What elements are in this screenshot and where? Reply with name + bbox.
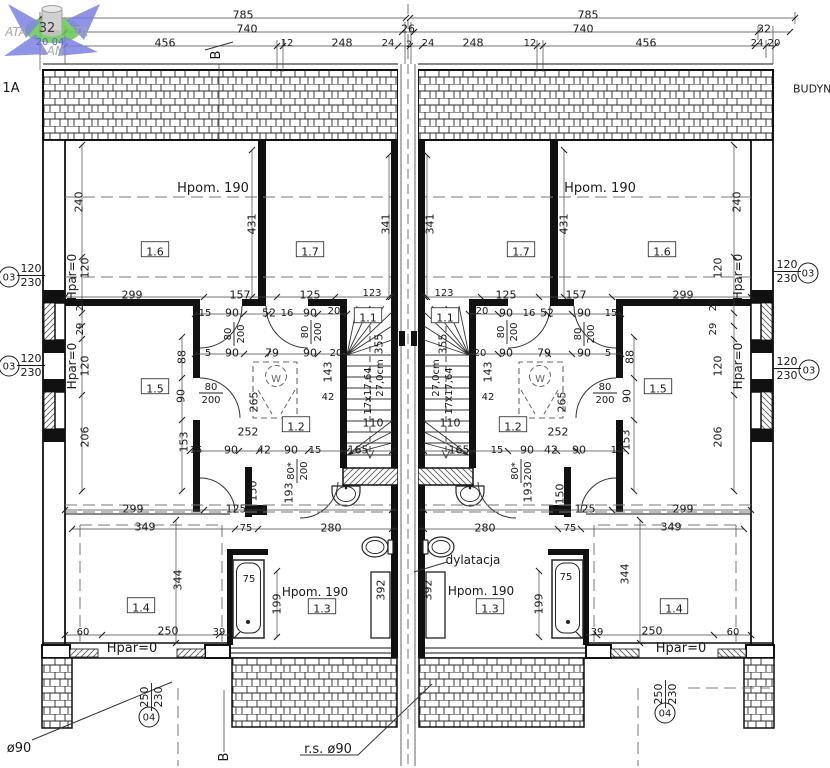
svg-text:20 04: 20 04	[36, 37, 65, 48]
svg-text:27,0cm: 27,0cm	[431, 359, 442, 397]
svg-text:90: 90	[577, 347, 591, 360]
dim-label: 740	[237, 23, 258, 36]
room-number: 1.5	[644, 379, 671, 396]
room-number: 1.5	[141, 379, 168, 396]
dim-label: 90	[225, 307, 239, 320]
svg-text:29: 29	[708, 323, 719, 336]
svg-text:248: 248	[463, 37, 484, 50]
dim-label: 120	[712, 258, 725, 279]
dim-label: 165	[449, 444, 470, 457]
dim-label: 199	[533, 594, 546, 615]
svg-text:299: 299	[122, 289, 143, 302]
dim-label: 265	[556, 392, 569, 413]
dim-label: 24	[751, 38, 764, 49]
wall-height-label: Hpar=0	[65, 254, 79, 301]
dim-label: 193	[283, 483, 296, 504]
dim-label: 431	[558, 214, 571, 235]
room-number: 1.2	[282, 417, 309, 434]
svg-text:42: 42	[482, 392, 495, 403]
svg-text:120: 120	[712, 356, 725, 377]
dim-label: 42	[482, 392, 495, 403]
svg-text:ATA: ATA	[4, 25, 27, 39]
stair-riser-label: 17x17,64	[444, 367, 455, 414]
svg-text:15: 15	[199, 308, 212, 319]
dim-label: 52	[262, 307, 276, 320]
dim-label: 60	[727, 627, 740, 638]
dilatation-joint	[398, 4, 418, 768]
svg-text:355: 355	[373, 334, 386, 355]
wall-height-label: Hpar=0	[107, 641, 158, 656]
window-marker: 04250230	[652, 680, 679, 723]
svg-text:341: 341	[424, 214, 437, 235]
dim-label: 125	[496, 289, 517, 302]
dim-label: 349	[135, 521, 156, 534]
svg-text:42: 42	[257, 444, 271, 457]
svg-text:80: 80	[223, 328, 234, 341]
dim-label: 120	[79, 258, 92, 279]
svg-text:15: 15	[309, 445, 322, 456]
washer-symbol: W	[271, 374, 281, 385]
wall-height-label: Hpar=0	[731, 343, 745, 390]
svg-text:80: 80	[300, 326, 311, 339]
dim-label: 355	[373, 334, 386, 355]
dim-label: 90	[224, 444, 238, 457]
svg-text:1.4: 1.4	[132, 602, 150, 615]
dim-label: 248	[332, 37, 353, 50]
dim-label: 15	[491, 445, 504, 456]
dim-label: 5	[605, 348, 611, 359]
svg-text:90: 90	[520, 444, 534, 457]
window-marker: 03120230	[0, 352, 45, 379]
dim-label: 20	[330, 348, 343, 359]
svg-text:250: 250	[642, 625, 663, 638]
svg-text:60: 60	[727, 627, 740, 638]
svg-text:79: 79	[265, 347, 279, 360]
dim-label: 15	[199, 308, 212, 319]
svg-text:TA: TA	[74, 25, 88, 39]
dim-label: 29	[708, 323, 719, 336]
dim-label: 24	[422, 38, 435, 49]
door-size-label: 80200	[223, 322, 247, 346]
dim-label: 88	[176, 350, 189, 364]
svg-text:125: 125	[575, 503, 596, 516]
svg-text:230: 230	[666, 684, 679, 705]
svg-text:431: 431	[246, 214, 259, 235]
floor-plan-drawing: 7857857402674032456122482422424812456242…	[0, 0, 830, 768]
wall-height-label: Hpar=0	[731, 254, 745, 301]
watermark-text: 32	[39, 21, 56, 36]
svg-text:17x17,64: 17x17,64	[444, 367, 455, 414]
dim-label: 456	[636, 37, 657, 50]
svg-text:1A: 1A	[2, 81, 19, 96]
rainwater-pipe-label: r.s. ø90	[304, 742, 352, 757]
room-height-label: Hpom. 190	[448, 584, 514, 598]
svg-text:90: 90	[303, 347, 317, 360]
svg-text:16: 16	[281, 308, 294, 319]
dim-label: 123	[362, 288, 381, 299]
svg-text:1.1: 1.1	[359, 312, 377, 325]
dim-label: 90	[175, 389, 188, 403]
svg-text:240: 240	[73, 192, 86, 213]
door-size-label: 80200	[593, 382, 617, 406]
dim-label: 20	[476, 306, 489, 317]
dim-label: 79	[537, 347, 551, 360]
svg-text:120: 120	[21, 352, 42, 365]
dim-label: 90	[621, 389, 634, 403]
svg-text:110: 110	[440, 417, 461, 430]
room-number: 1.2	[499, 417, 526, 434]
dim-label: 206	[712, 427, 725, 448]
svg-text:5: 5	[605, 348, 611, 359]
watermark-text: ATA	[4, 25, 27, 39]
dim-label: 15	[190, 445, 203, 456]
svg-text:200: 200	[586, 324, 597, 343]
svg-text:740: 740	[237, 23, 258, 36]
svg-text:230: 230	[777, 272, 798, 285]
svg-text:120: 120	[712, 258, 725, 279]
dim-label: 90	[303, 307, 317, 320]
svg-text:120: 120	[21, 262, 42, 275]
dim-label: 157	[230, 289, 251, 302]
svg-text:252: 252	[548, 426, 569, 439]
svg-text:80*: 80*	[286, 462, 297, 480]
dim-label: 143	[322, 362, 335, 383]
svg-text:Hpom. 190: Hpom. 190	[448, 584, 514, 598]
svg-text:431: 431	[558, 214, 571, 235]
dim-label: 88	[624, 350, 637, 364]
svg-text:1.3: 1.3	[313, 603, 331, 616]
dim-label: 150	[247, 481, 260, 502]
dim-label: 150	[554, 484, 567, 505]
room-number: 1.3	[308, 599, 335, 616]
dim-label: 299	[673, 289, 694, 302]
window-marker: 04250230	[138, 683, 165, 727]
dim-label: 32	[757, 23, 771, 36]
dim-label: 29	[708, 299, 719, 312]
dim-label: 252	[548, 426, 569, 439]
dim-label: 240	[73, 192, 86, 213]
svg-text:1.7: 1.7	[301, 246, 319, 259]
svg-text:BUDYNE: BUDYNE	[793, 83, 830, 96]
svg-text:265: 265	[248, 392, 261, 413]
svg-text:299: 299	[673, 289, 694, 302]
door-size-label: 80200	[199, 382, 223, 406]
svg-text:26: 26	[401, 23, 415, 36]
svg-text:29: 29	[75, 299, 86, 312]
svg-text:20: 20	[476, 306, 489, 317]
svg-text:5: 5	[205, 348, 211, 359]
dim-label: 20	[328, 306, 341, 317]
svg-text:90: 90	[225, 307, 239, 320]
svg-text:80*: 80*	[510, 462, 521, 480]
svg-text:392: 392	[422, 580, 435, 601]
svg-text:15: 15	[491, 445, 504, 456]
svg-text:dylatacja: dylatacja	[446, 553, 501, 567]
dim-label: 120	[712, 356, 725, 377]
wall-height-label: Hpar=0	[65, 343, 79, 390]
svg-text:120: 120	[79, 356, 92, 377]
svg-text:20: 20	[474, 348, 487, 359]
room-number: 1.7	[296, 242, 323, 259]
svg-text:349: 349	[135, 521, 156, 534]
washer-symbol: W	[535, 374, 545, 385]
stair-tread-label: 27,0cm	[375, 359, 386, 397]
room-number: 1.3	[476, 599, 503, 616]
dim-label: 90	[572, 444, 586, 457]
room-number: 1.6	[648, 242, 675, 259]
svg-text:456: 456	[155, 37, 176, 50]
svg-text:04: 04	[659, 709, 672, 720]
dim-label: 785	[578, 9, 599, 22]
svg-text:75: 75	[560, 572, 573, 583]
dim-label: 15	[605, 308, 618, 319]
door-size-label: 80*200	[286, 459, 310, 483]
dim-label: 90	[499, 307, 513, 320]
svg-text:200: 200	[201, 395, 220, 406]
svg-text:125: 125	[496, 289, 517, 302]
svg-text:1.2: 1.2	[287, 421, 305, 434]
svg-text:740: 740	[573, 23, 594, 36]
svg-text:12: 12	[281, 38, 294, 49]
dim-label: 5	[205, 348, 211, 359]
rainwater-pipe-label: ø90	[7, 741, 32, 756]
svg-text:04: 04	[143, 713, 156, 724]
dim-label: 12	[524, 38, 537, 49]
svg-text:280: 280	[475, 522, 496, 535]
watermark-text: TA	[74, 25, 88, 39]
svg-text:88: 88	[624, 350, 637, 364]
svg-text:1.5: 1.5	[146, 383, 164, 396]
dim-label: 206	[79, 427, 92, 448]
dim-label: 60	[77, 627, 90, 638]
svg-text:32: 32	[39, 21, 56, 36]
room-number: 1.1	[354, 308, 381, 325]
dim-label: 392	[375, 580, 388, 601]
room-number: 1.6	[141, 242, 168, 259]
svg-text:206: 206	[79, 427, 92, 448]
dim-label: 125	[300, 289, 321, 302]
dim-label: 341	[380, 214, 393, 235]
svg-text:2: 2	[406, 40, 412, 50]
svg-text:W: W	[271, 374, 281, 385]
svg-text:B: B	[217, 753, 232, 762]
svg-text:193: 193	[283, 483, 296, 504]
svg-text:r.s. ø90: r.s. ø90	[304, 742, 352, 757]
svg-text:250: 250	[138, 687, 151, 708]
svg-text:344: 344	[619, 564, 632, 585]
svg-text:125: 125	[300, 289, 321, 302]
dim-label: 153	[178, 432, 191, 453]
svg-text:42: 42	[544, 444, 558, 457]
dim-label: 29	[75, 299, 86, 312]
svg-text:20: 20	[768, 38, 781, 49]
svg-text:299: 299	[673, 503, 694, 516]
dim-label: 26	[401, 23, 415, 36]
svg-text:90: 90	[499, 307, 513, 320]
svg-text:90: 90	[499, 347, 513, 360]
dim-label: 90	[284, 444, 298, 457]
dim-label: 39	[591, 627, 604, 638]
svg-text:Hpom. 190: Hpom. 190	[564, 181, 636, 196]
watermark-text: 20 04	[36, 37, 65, 48]
svg-text:Hpom. 190: Hpom. 190	[177, 181, 249, 196]
svg-text:123: 123	[362, 288, 381, 299]
svg-text:1.5: 1.5	[649, 383, 667, 396]
dim-label: 75	[560, 572, 573, 583]
svg-text:B: B	[209, 51, 224, 60]
dim-label: 90	[520, 444, 534, 457]
dim-label: 265	[248, 392, 261, 413]
svg-text:12: 12	[524, 38, 537, 49]
window-marker: 03120230	[773, 258, 818, 285]
door-size-label: 80*200	[510, 459, 534, 483]
svg-text:120: 120	[777, 355, 798, 368]
svg-text:90: 90	[577, 307, 591, 320]
svg-text:90: 90	[224, 444, 238, 457]
building-label-right: BUDYNE	[793, 83, 830, 96]
svg-text:230: 230	[152, 687, 165, 708]
room-number: 1.7	[507, 242, 534, 259]
dim-label: 15	[611, 445, 624, 456]
svg-text:1.2: 1.2	[504, 421, 522, 434]
section-marker-b-bottom: B	[217, 753, 232, 762]
svg-text:79: 79	[537, 347, 551, 360]
svg-text:230: 230	[21, 366, 42, 379]
dim-label: 240	[731, 192, 744, 213]
room-number: 1.1	[431, 308, 458, 325]
dim-label: 456	[155, 37, 176, 50]
dim-label: 39	[213, 627, 226, 638]
dim-label: 344	[172, 570, 185, 591]
svg-text:03: 03	[3, 362, 16, 373]
dim-label: 392	[422, 580, 435, 601]
svg-text:17x17,64: 17x17,64	[363, 367, 374, 414]
dim-label: 15	[309, 445, 322, 456]
dim-label: 42	[544, 444, 558, 457]
room-height-label: Hpom. 190	[564, 181, 636, 196]
dim-label: 250	[642, 625, 663, 638]
dim-label: 20	[474, 348, 487, 359]
building-label-left: 1A	[2, 81, 19, 96]
svg-text:123: 123	[434, 288, 453, 299]
svg-text:Hpar=0: Hpar=0	[731, 254, 745, 301]
svg-text:03: 03	[803, 366, 816, 377]
dim-label: 252	[238, 426, 259, 439]
svg-text:80: 80	[205, 382, 218, 393]
svg-text:1.6: 1.6	[146, 246, 164, 259]
dim-label: 52	[540, 307, 554, 320]
svg-text:ø90: ø90	[7, 741, 32, 756]
dim-label: 355	[437, 334, 450, 355]
svg-text:03: 03	[3, 273, 16, 284]
svg-text:29: 29	[75, 323, 86, 336]
dim-label: 165	[348, 444, 369, 457]
svg-text:125: 125	[226, 503, 247, 516]
svg-text:20: 20	[328, 306, 341, 317]
svg-text:75: 75	[243, 574, 256, 585]
dim-label: 24	[382, 38, 395, 49]
dim-label: 299	[122, 289, 143, 302]
svg-text:20: 20	[330, 348, 343, 359]
room-height-label: Hpom. 190	[177, 181, 249, 196]
svg-text:88: 88	[176, 350, 189, 364]
svg-text:252: 252	[238, 426, 259, 439]
svg-text:193: 193	[522, 482, 535, 503]
svg-text:165: 165	[449, 444, 470, 457]
dim-label: 2	[406, 40, 412, 50]
svg-text:150: 150	[554, 484, 567, 505]
svg-text:1.7: 1.7	[512, 246, 530, 259]
dim-label: 110	[363, 417, 384, 430]
svg-text:42: 42	[322, 392, 335, 403]
svg-text:29: 29	[708, 299, 719, 312]
svg-text:24: 24	[422, 38, 435, 49]
svg-text:W: W	[535, 374, 545, 385]
svg-text:200: 200	[236, 324, 247, 343]
svg-text:90: 90	[572, 444, 586, 457]
svg-text:200: 200	[595, 395, 614, 406]
dim-label: 123	[434, 288, 453, 299]
svg-text:206: 206	[712, 427, 725, 448]
svg-text:344: 344	[172, 570, 185, 591]
svg-text:52: 52	[540, 307, 554, 320]
svg-text:785: 785	[233, 9, 254, 22]
svg-text:240: 240	[731, 192, 744, 213]
dim-label: 29	[75, 323, 86, 336]
dim-label: 349	[661, 521, 682, 534]
svg-text:39: 39	[591, 627, 604, 638]
floor-plan-page: { "drawing_type": "architectural-floor-p…	[0, 0, 830, 768]
svg-text:157: 157	[230, 289, 251, 302]
dim-label: 143	[482, 362, 495, 383]
svg-text:200: 200	[313, 322, 324, 341]
svg-text:90: 90	[225, 347, 239, 360]
svg-text:03: 03	[802, 269, 815, 280]
dim-label: 79	[265, 347, 279, 360]
svg-text:200: 200	[509, 322, 520, 341]
stair-riser-label: 17x17,64	[363, 367, 374, 414]
svg-text:Hpar=0: Hpar=0	[107, 641, 158, 656]
dim-label: 75	[240, 523, 253, 534]
svg-text:15: 15	[605, 308, 618, 319]
dim-label: 193	[522, 482, 535, 503]
dim-label: 280	[321, 522, 342, 535]
svg-text:27,0cm: 27,0cm	[375, 359, 386, 397]
svg-text:785: 785	[578, 9, 599, 22]
dim-label: 157	[566, 289, 587, 302]
dim-label: 42	[257, 444, 271, 457]
svg-text:150: 150	[247, 481, 260, 502]
dim-label: 250	[158, 625, 179, 638]
dim-label: 125	[226, 503, 247, 516]
svg-text:90: 90	[621, 389, 634, 403]
svg-text:80: 80	[599, 382, 612, 393]
svg-text:248: 248	[332, 37, 353, 50]
dim-label: 125	[575, 503, 596, 516]
room-number: 1.4	[127, 598, 154, 615]
dim-label: 431	[246, 214, 259, 235]
dim-label: 90	[577, 347, 591, 360]
dim-label: 16	[523, 308, 536, 319]
room-height-label: Hpom. 190	[282, 585, 348, 599]
svg-text:Hpar=0: Hpar=0	[656, 641, 707, 656]
svg-text:200: 200	[299, 461, 310, 480]
svg-text:60: 60	[77, 627, 90, 638]
svg-text:1.1: 1.1	[436, 312, 454, 325]
svg-text:349: 349	[661, 521, 682, 534]
svg-text:16: 16	[523, 308, 536, 319]
svg-text:153: 153	[178, 432, 191, 453]
